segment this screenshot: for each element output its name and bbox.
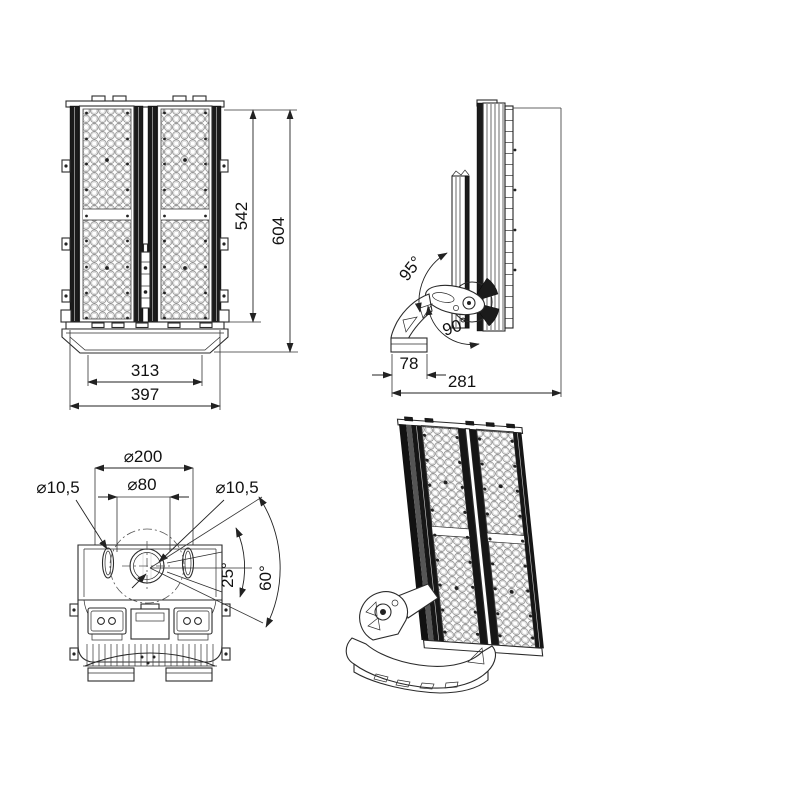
hinge-lug (220, 160, 228, 172)
top-fixture-body (70, 529, 230, 681)
dim-bracket-width: 313 (131, 361, 159, 380)
technical-drawing-sheet: 542 604 313 397 (0, 0, 800, 800)
dim-bolt-circle-dia: ⌀200 (124, 447, 163, 466)
side-base-foot (391, 338, 427, 352)
front-bracket-base (62, 329, 228, 353)
hinge-lug (220, 238, 228, 250)
isometric-view (346, 416, 545, 693)
dim-center-hole-dia: ⌀80 (127, 475, 156, 494)
dim-swivel-angle-outer: 60° (256, 565, 275, 591)
gland-box (131, 609, 169, 639)
dim-led-height: 542 (232, 202, 251, 230)
dim-total-height: 604 (269, 217, 288, 245)
dim-tilt-back-angle: 95° (395, 253, 426, 285)
drawing-canvas: 542 604 313 397 (0, 0, 800, 800)
front-fixture-body (61, 96, 229, 353)
driver-box-left (88, 608, 126, 634)
driver-box-right (174, 608, 212, 634)
heatsink-fins (83, 644, 217, 666)
hinge-lug (62, 160, 70, 172)
dim-swivel-angle-inner: 25° (218, 562, 237, 588)
mounting-plate (78, 545, 222, 600)
iso-pivot-plate (360, 592, 408, 640)
center-clamp (141, 244, 150, 308)
led-panel-edge (505, 106, 513, 328)
hinge-lug (220, 290, 228, 302)
side-view: 95° 90° 78 281 (372, 100, 561, 397)
dim-left-hole-dia: ⌀10,5 (36, 478, 79, 497)
iso-module-assembly (397, 416, 546, 656)
dim-base-depth: 78 (400, 354, 419, 373)
dim-total-depth: 281 (448, 372, 476, 391)
dim-total-width: 397 (131, 385, 159, 404)
top-view: ⌀200 ⌀10,5 ⌀80 ⌀10,5 25° 60° (36, 447, 280, 681)
side-fixture-profile (391, 100, 516, 352)
front-view: 542 604 313 397 (61, 96, 298, 410)
hinge-lug (62, 238, 70, 250)
hinge-lug (62, 290, 70, 302)
dim-right-hole-dia: ⌀10,5 (215, 478, 258, 497)
